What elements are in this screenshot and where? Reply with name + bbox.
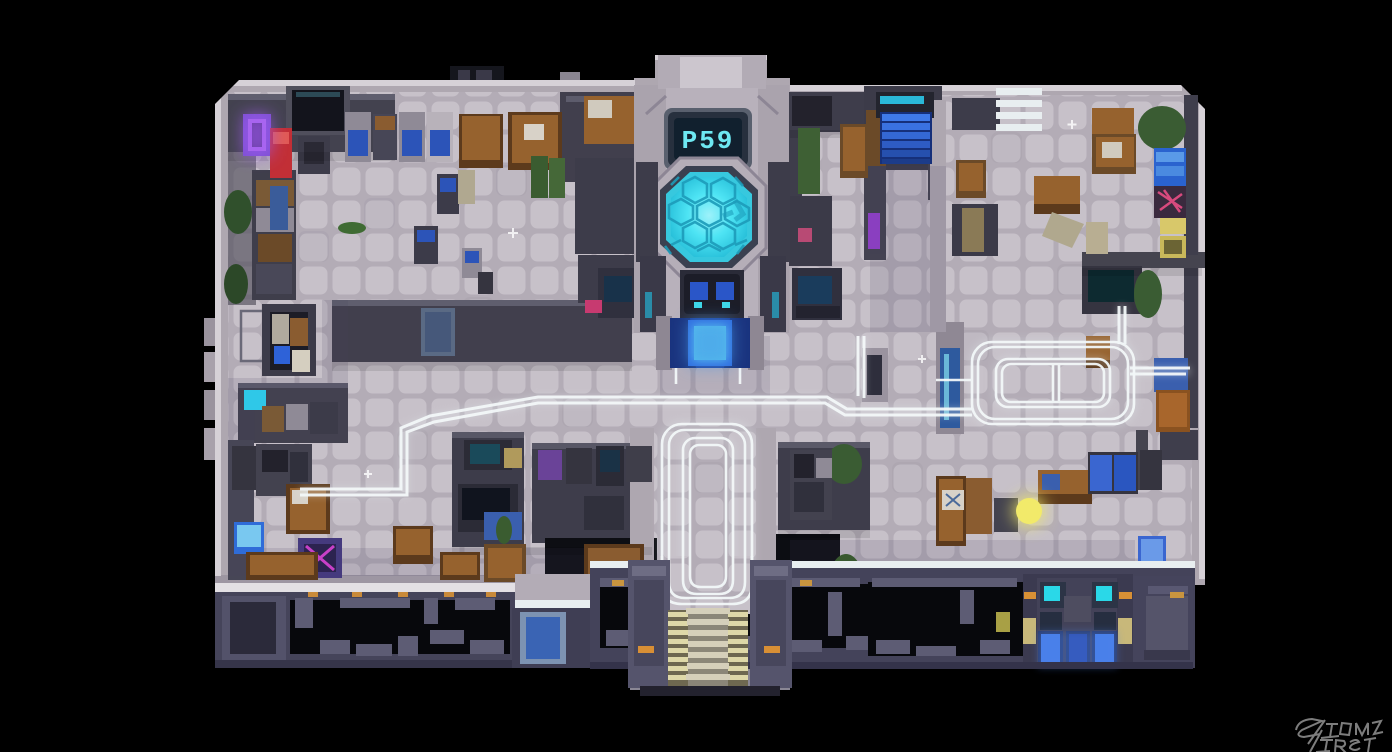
svg-text:P59: P59 <box>682 126 735 156</box>
